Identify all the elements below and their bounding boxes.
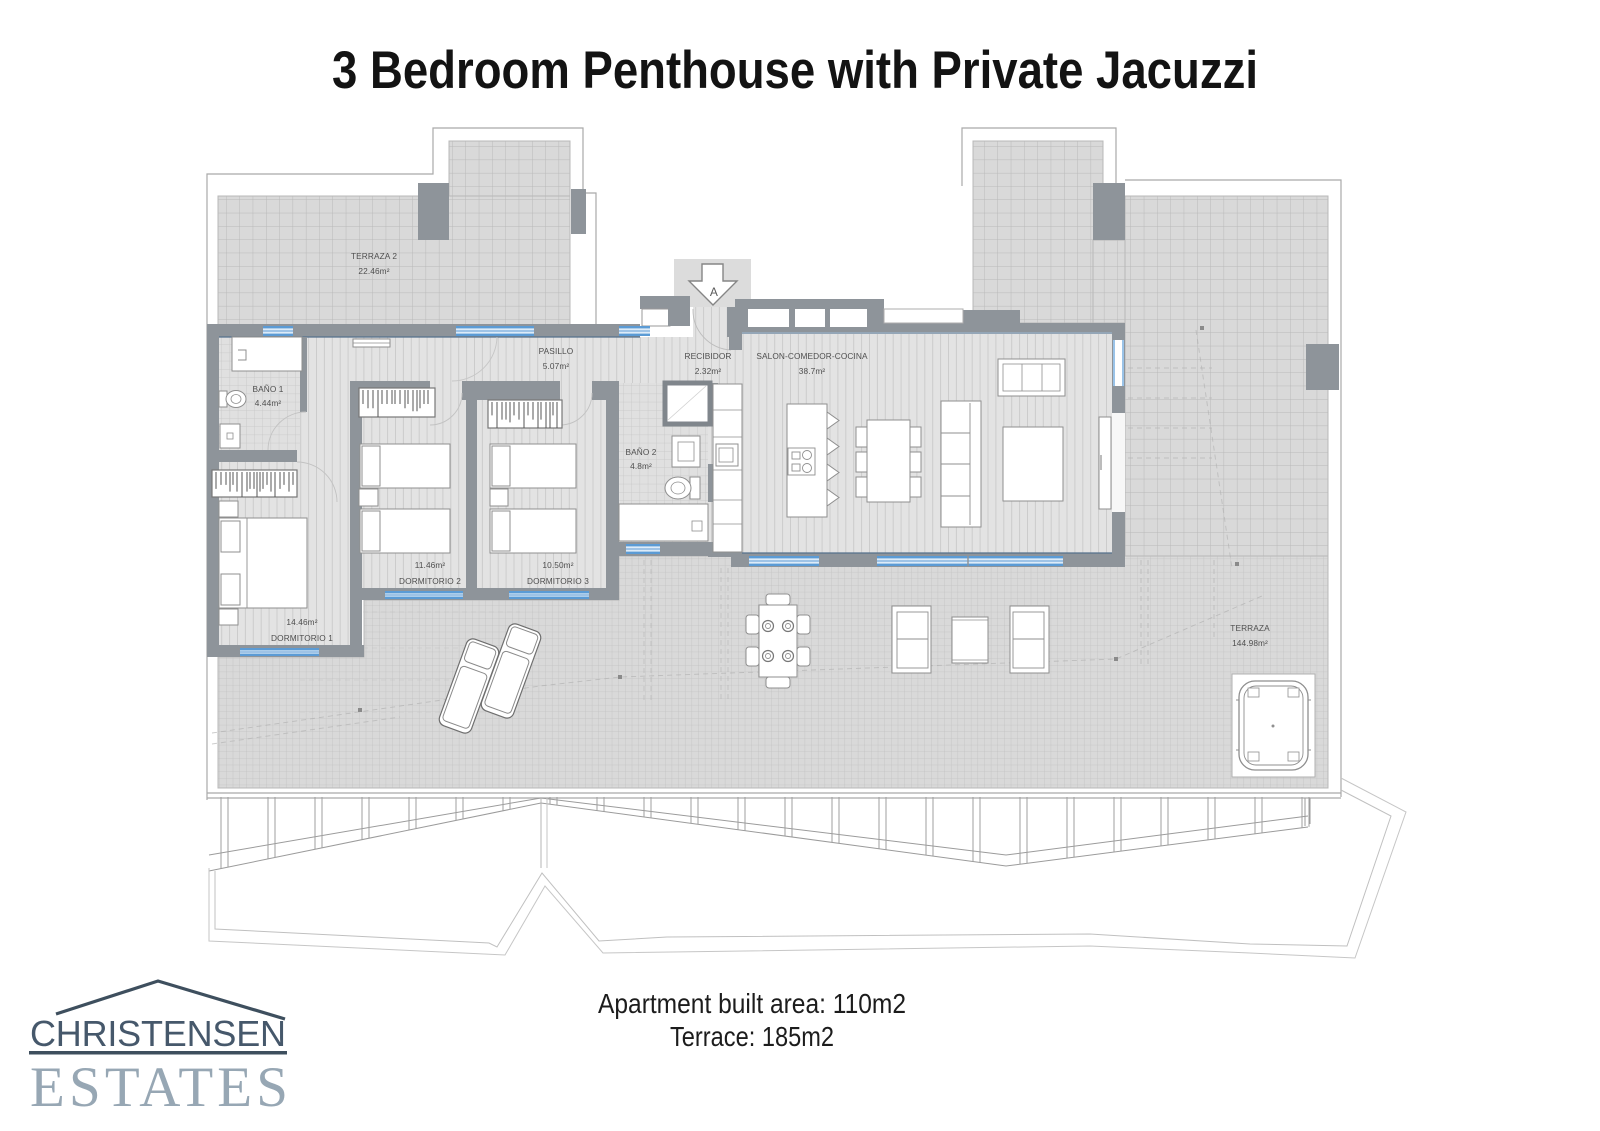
svg-text:BAÑO 2: BAÑO 2	[625, 447, 656, 457]
svg-text:DORMITORIO 3: DORMITORIO 3	[527, 576, 589, 586]
svg-text:38.7m²: 38.7m²	[799, 366, 826, 376]
svg-text:PASILLO: PASILLO	[539, 346, 574, 356]
svg-text:DORMITORIO 2: DORMITORIO 2	[399, 576, 461, 586]
svg-text:11.46m²: 11.46m²	[415, 560, 446, 570]
svg-text:5.07m²: 5.07m²	[543, 361, 570, 371]
svg-text:DORMITORIO 1: DORMITORIO 1	[271, 633, 333, 643]
svg-text:14.46m²: 14.46m²	[286, 617, 317, 627]
svg-text:22.46m²: 22.46m²	[358, 266, 389, 276]
svg-text:ESTATES: ESTATES	[30, 1056, 288, 1119]
svg-text:144.98m²: 144.98m²	[1232, 638, 1268, 648]
svg-text:CHRISTENSEN: CHRISTENSEN	[30, 1013, 286, 1054]
svg-text:RECIBIDOR: RECIBIDOR	[685, 351, 732, 361]
svg-text:4.44m²: 4.44m²	[255, 398, 282, 408]
svg-text:A: A	[710, 285, 718, 299]
svg-text:3 Bedroom Penthouse with Priva: 3 Bedroom Penthouse with Private Jacuzzi	[332, 41, 1258, 100]
svg-text:10.50m²: 10.50m²	[542, 560, 573, 570]
svg-text:TERRAZA: TERRAZA	[1230, 623, 1270, 633]
svg-text:4.8m²: 4.8m²	[630, 461, 652, 471]
svg-text:Apartment built area: 110m2: Apartment built area: 110m2	[598, 988, 906, 1019]
svg-text:TERRAZA 2: TERRAZA 2	[351, 251, 397, 261]
svg-text:Terrace: 185m2: Terrace: 185m2	[670, 1021, 834, 1052]
svg-text:BAÑO 1: BAÑO 1	[252, 384, 283, 394]
svg-text:SALON-COMEDOR-COCINA: SALON-COMEDOR-COCINA	[756, 351, 868, 361]
svg-text:2.32m²: 2.32m²	[695, 366, 722, 376]
